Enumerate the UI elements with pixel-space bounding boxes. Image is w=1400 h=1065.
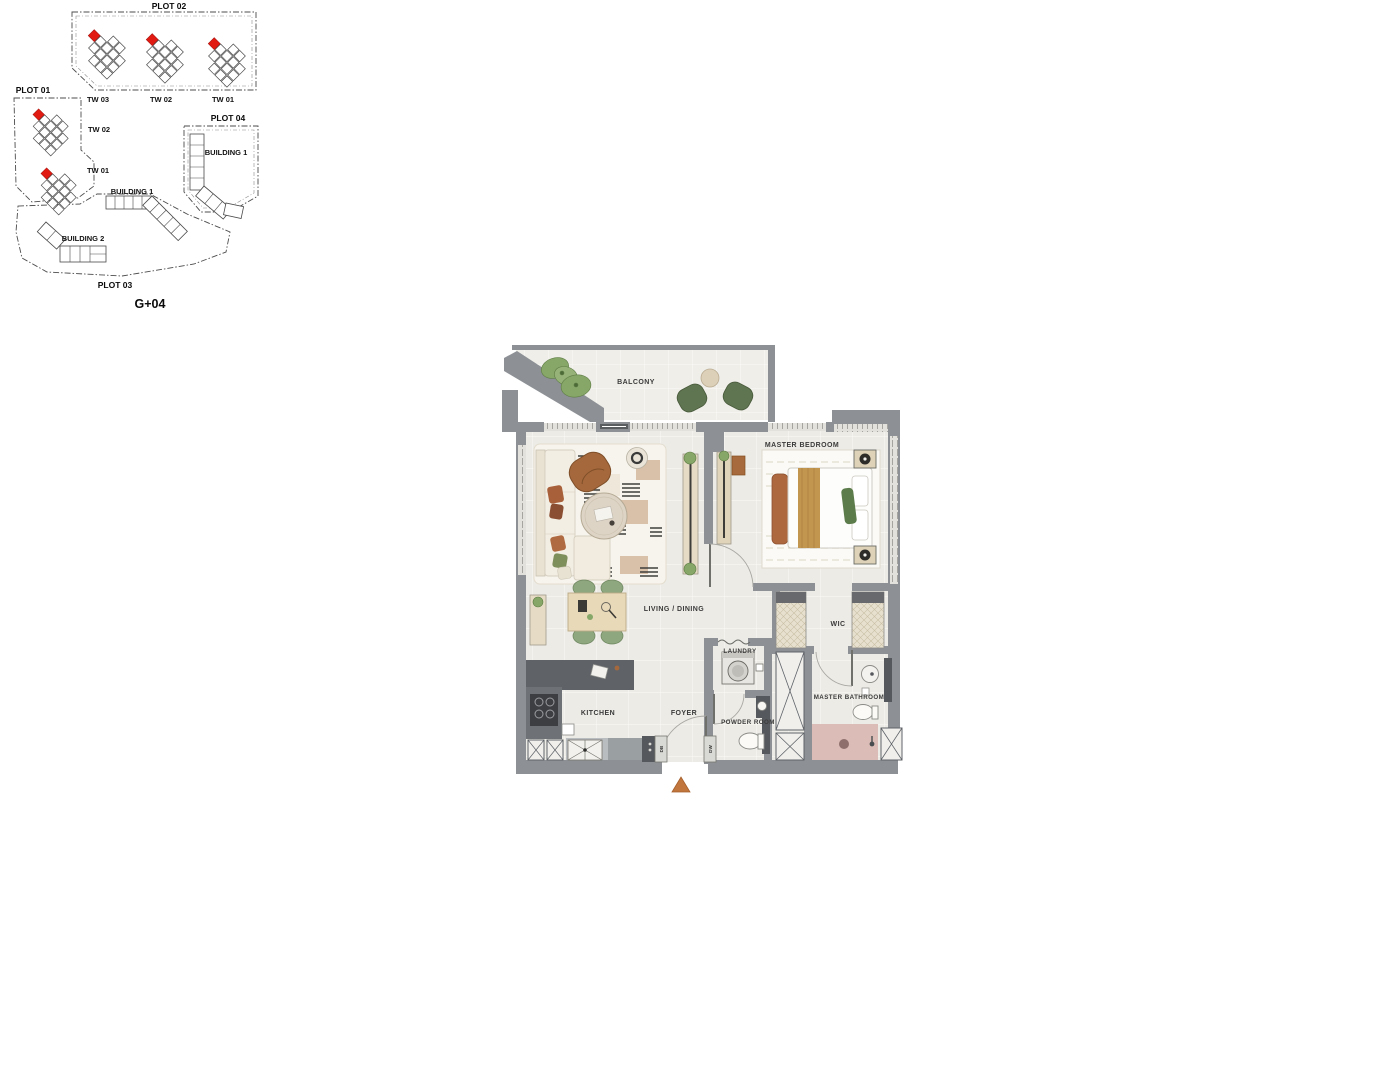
tw01-label: TW 01 <box>212 95 234 104</box>
foyer-label: FOYER <box>671 710 697 717</box>
plant-icon <box>533 597 543 607</box>
tw03-label: TW 03 <box>87 95 109 104</box>
building-1-plot03-shape <box>106 196 187 241</box>
powder-sink <box>758 702 767 711</box>
plant-icon <box>684 563 696 575</box>
living-dining-label: LIVING / DINING <box>644 606 705 613</box>
nightstand-top <box>854 450 876 468</box>
bed <box>772 468 872 548</box>
tower-cluster-p2-tw02 <box>134 27 190 83</box>
kitchen-sink <box>562 724 574 735</box>
site-key-plan: PLOT 02 PLOT 01 PLOT 03 PLOT 04 TW 03 TW… <box>2 0 282 320</box>
wic-label: WIC <box>831 621 846 628</box>
tower-cluster-p2-tw01 <box>196 31 252 87</box>
side-table <box>627 448 648 469</box>
stove <box>530 694 558 726</box>
laundry-label: LAUNDRY <box>723 648 757 655</box>
p3-building2-label: BUILDING 2 <box>62 234 105 243</box>
plot-01-label: PLOT 01 <box>16 85 51 95</box>
p1-tw02-label: TW 02 <box>88 125 110 134</box>
bed-bench <box>772 474 788 544</box>
tv-console-living <box>683 452 698 575</box>
db-tag: DB <box>659 745 664 752</box>
tower-cluster-p1-tw02 <box>21 103 74 156</box>
nightstand-bottom <box>854 546 876 564</box>
tower-cluster-p2-tw03 <box>76 23 132 79</box>
plant-icon <box>719 451 729 461</box>
page: PLOT 02 PLOT 01 PLOT 03 PLOT 04 TW 03 TW… <box>0 0 1400 1065</box>
coffee-table <box>581 493 627 539</box>
plot-02-label: PLOT 02 <box>152 1 187 11</box>
plot-04-label: PLOT 04 <box>211 113 246 123</box>
balcony-side-table <box>701 369 719 387</box>
shower-drain <box>839 739 849 749</box>
master-bedroom-label: MASTER BEDROOM <box>765 442 839 449</box>
master-bathroom-label: MASTER BATHROOM <box>814 694 885 701</box>
p1-tw01-label: TW 01 <box>87 166 109 175</box>
entry-arrow <box>672 777 690 792</box>
unit-floor-plan: BALCONY MASTER BEDROOM LIVING / DINING W… <box>500 340 910 800</box>
p3-building1-label: BUILDING 1 <box>111 187 154 196</box>
balcony-label: BALCONY <box>617 379 655 386</box>
kitchen-label: KITCHEN <box>581 710 615 717</box>
plot-03-label: PLOT 03 <box>98 280 133 290</box>
stool <box>732 456 745 475</box>
bathroom-sink <box>862 666 879 683</box>
building-1-plot04-shape <box>190 134 244 219</box>
bathroom-toilet <box>853 705 873 720</box>
tw02-label: TW 02 <box>150 95 172 104</box>
dining-table <box>568 593 626 631</box>
hallway-console <box>530 595 546 645</box>
plant-icon <box>684 452 696 464</box>
bed-runner <box>798 468 820 548</box>
floor-level-label: G+04 <box>135 297 166 311</box>
p4-building1-label: BUILDING 1 <box>205 148 248 157</box>
shower-head <box>870 742 875 747</box>
dw-tag: DW <box>708 745 713 753</box>
tower-cluster-p1-tw01 <box>29 162 82 215</box>
powder-room-label: POWDER ROOM <box>721 719 775 726</box>
